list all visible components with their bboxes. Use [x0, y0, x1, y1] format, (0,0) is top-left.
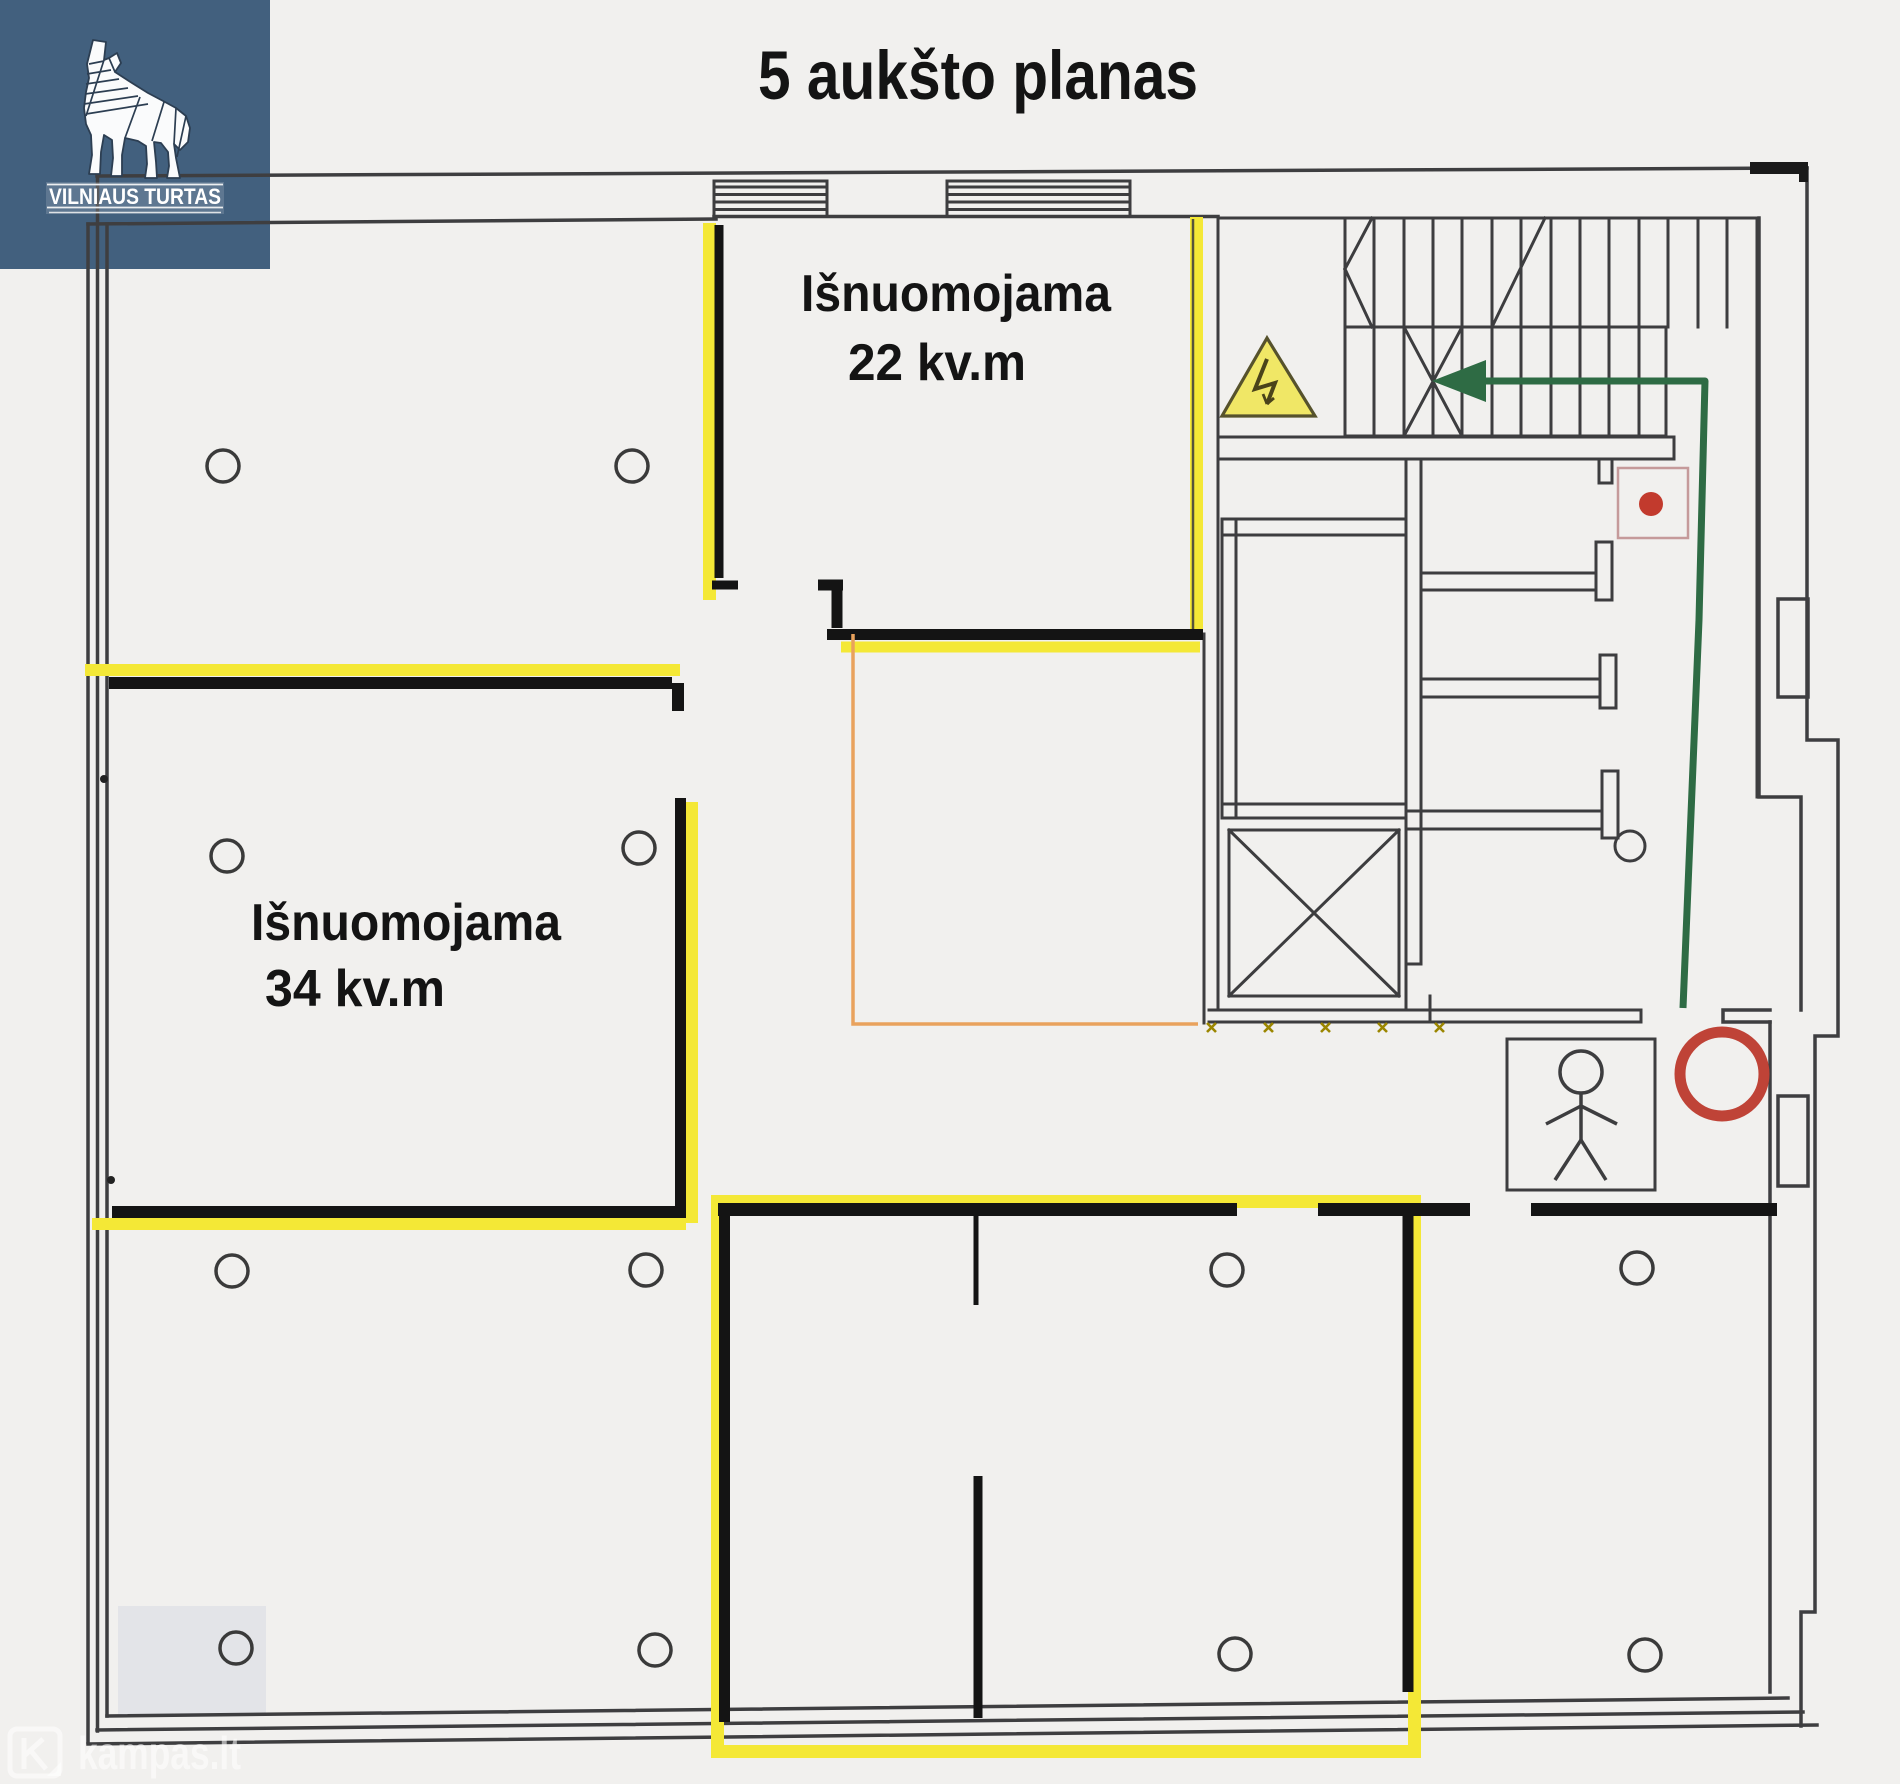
svg-text:Išnuomojama: Išnuomojama — [801, 265, 1112, 323]
svg-text:34 kv.m: 34 kv.m — [265, 960, 445, 1018]
svg-text:kampas.lt: kampas.lt — [78, 1727, 241, 1779]
svg-text:VILNIAUS TURTAS: VILNIAUS TURTAS — [49, 184, 221, 209]
svg-text:5 aukšto planas: 5 aukšto planas — [758, 37, 1198, 114]
svg-text:22 kv.m: 22 kv.m — [848, 334, 1026, 392]
svg-text:Išnuomojama: Išnuomojama — [251, 894, 562, 952]
